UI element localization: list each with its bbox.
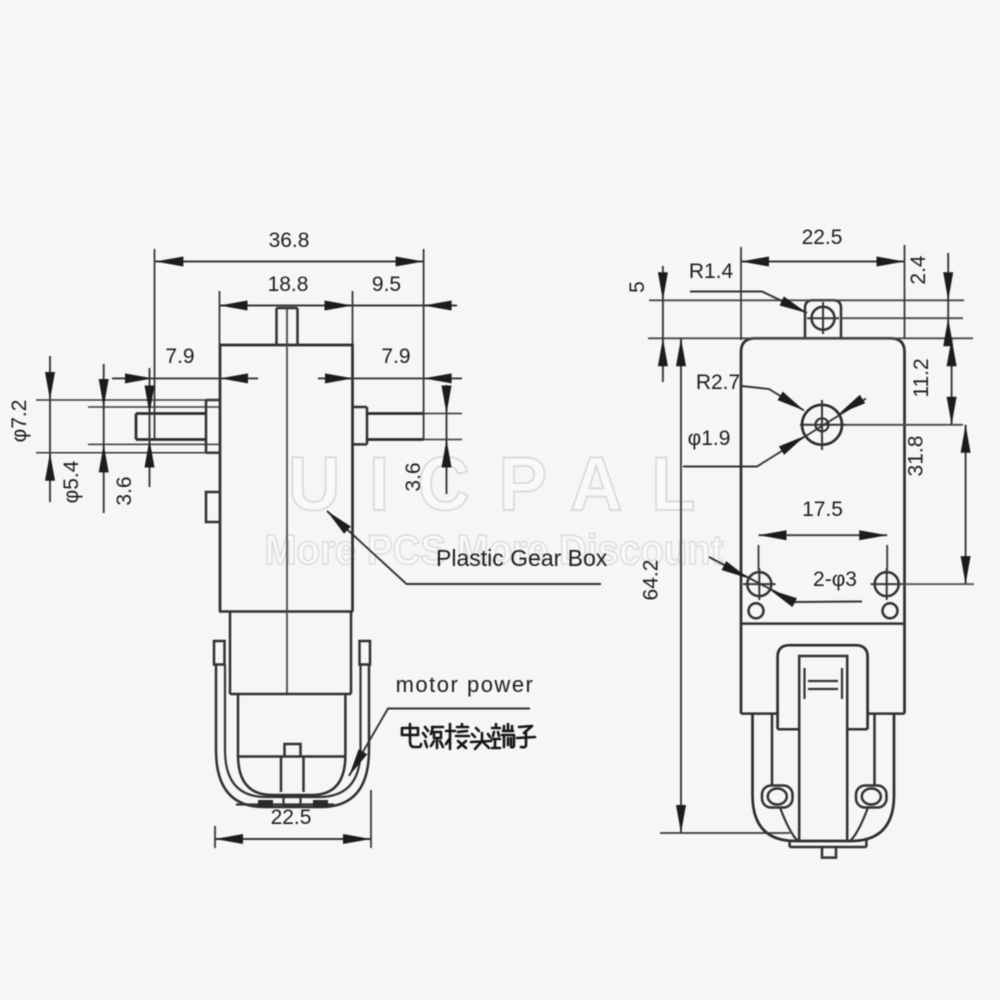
- svg-text:φ7.2: φ7.2: [8, 400, 31, 443]
- svg-text:2-φ3: 2-φ3: [813, 568, 857, 591]
- svg-text:17.5: 17.5: [802, 498, 843, 521]
- svg-text:31.8: 31.8: [905, 436, 928, 477]
- svg-text:64.2: 64.2: [640, 560, 663, 601]
- svg-text:motor power: motor power: [396, 672, 535, 697]
- svg-text:7.9: 7.9: [165, 345, 194, 368]
- svg-text:9.5: 9.5: [372, 273, 401, 296]
- svg-text:7.9: 7.9: [381, 345, 410, 368]
- svg-text:3.6: 3.6: [402, 462, 425, 491]
- svg-text:φ5.4: φ5.4: [60, 460, 83, 503]
- svg-text:5: 5: [626, 281, 649, 293]
- svg-text:R1.4: R1.4: [689, 260, 734, 283]
- svg-text:R2.7: R2.7: [696, 371, 740, 394]
- svg-text:18.8: 18.8: [268, 273, 309, 296]
- svg-text:2.4: 2.4: [907, 255, 930, 285]
- svg-text:36.8: 36.8: [269, 229, 310, 252]
- svg-text:3.6: 3.6: [113, 476, 136, 505]
- svg-text:22.5: 22.5: [802, 226, 843, 249]
- svg-text:11.2: 11.2: [910, 358, 933, 397]
- svg-text:φ1.9: φ1.9: [688, 427, 731, 450]
- svg-text:22.5: 22.5: [271, 806, 312, 829]
- svg-text:Plastic Gear Box: Plastic Gear Box: [436, 545, 608, 571]
